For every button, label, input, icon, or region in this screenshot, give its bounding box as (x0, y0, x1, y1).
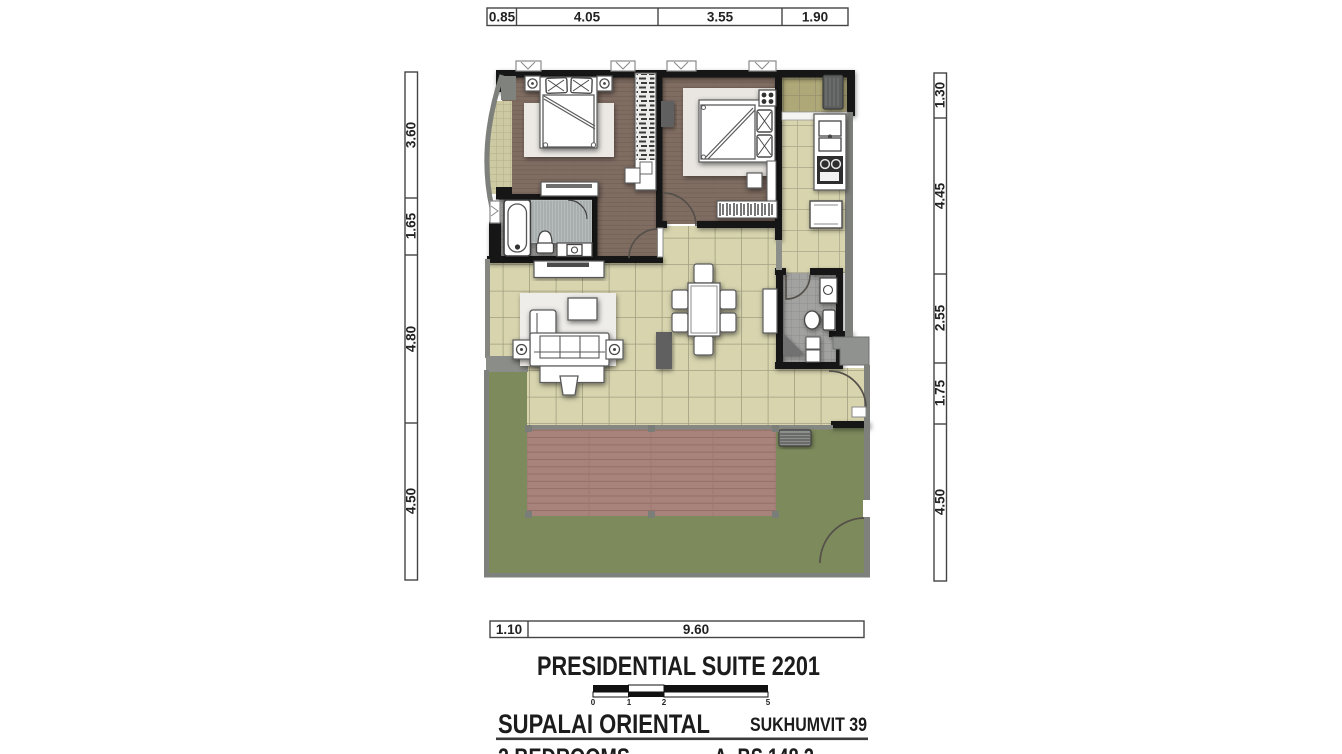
svg-text:2: 2 (662, 698, 667, 707)
svg-text:4.80: 4.80 (404, 326, 419, 352)
svg-text:PRESIDENTIAL SUITE 2201: PRESIDENTIAL SUITE 2201 (537, 651, 820, 681)
svg-text:1.10: 1.10 (496, 622, 522, 637)
svg-text:4.50: 4.50 (404, 488, 419, 514)
svg-text:2.55: 2.55 (933, 304, 948, 331)
svg-text:9.60: 9.60 (683, 622, 709, 637)
svg-text:1.90: 1.90 (802, 10, 828, 25)
svg-text:3.55: 3.55 (707, 10, 734, 25)
svg-text:5: 5 (766, 698, 771, 707)
svg-text:1.75: 1.75 (933, 379, 948, 406)
svg-text:SUPALAI ORIENTAL: SUPALAI ORIENTAL (498, 709, 710, 739)
svg-text:3.60: 3.60 (404, 122, 419, 148)
svg-text:4.45: 4.45 (933, 182, 948, 209)
svg-text:1: 1 (627, 698, 632, 707)
svg-text:2 BEDROOMS: 2 BEDROOMS (498, 744, 630, 754)
svg-text:1.65: 1.65 (404, 212, 419, 239)
svg-text:1.30: 1.30 (933, 82, 948, 108)
svg-text:4.05: 4.05 (574, 10, 601, 25)
svg-text:0.85: 0.85 (489, 10, 516, 25)
svg-text:A. BS 148.2: A. BS 148.2 (714, 744, 814, 754)
svg-text:0: 0 (591, 698, 596, 707)
svg-text:SUKHUMVIT 39: SUKHUMVIT 39 (750, 715, 867, 736)
svg-text:4.50: 4.50 (933, 489, 948, 515)
